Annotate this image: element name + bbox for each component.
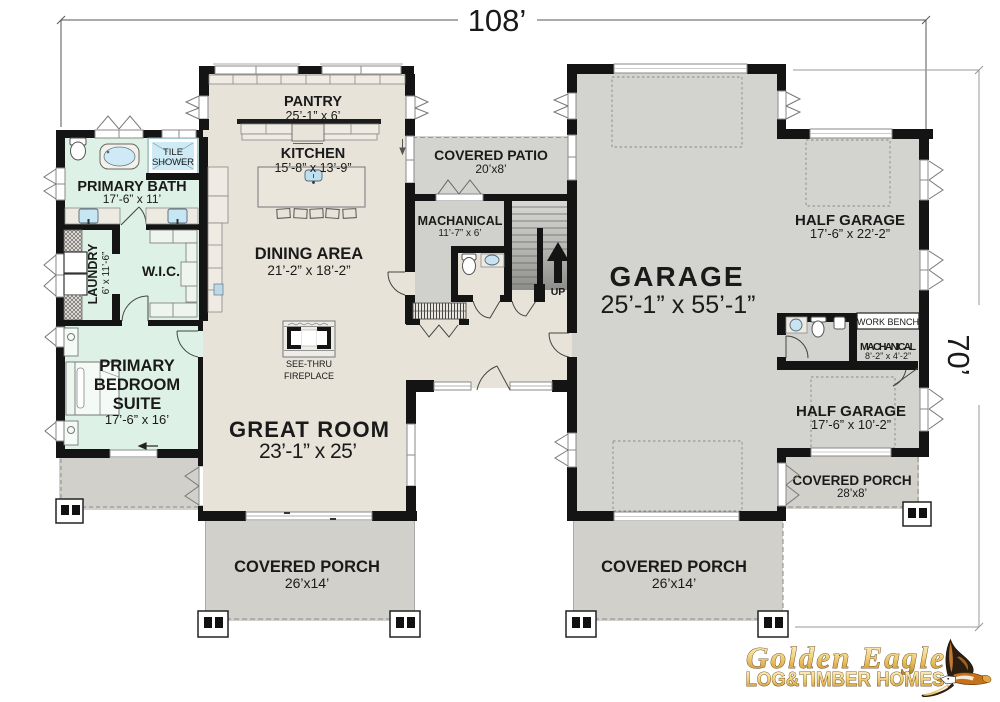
- svg-text:SUITE: SUITE: [113, 395, 162, 413]
- svg-text:UP: UP: [551, 286, 566, 298]
- svg-text:15’-8” x 13’-9”: 15’-8” x 13’-9”: [274, 161, 351, 175]
- svg-text:COVERED PORCH: COVERED PORCH: [234, 558, 380, 576]
- svg-text:26’x14’: 26’x14’: [285, 575, 329, 591]
- svg-text:COVERED PORCH: COVERED PORCH: [601, 558, 747, 576]
- svg-text:FIREPLACE: FIREPLACE: [284, 371, 334, 381]
- svg-text:GREAT ROOM: GREAT ROOM: [229, 417, 389, 442]
- svg-text:70’: 70’: [941, 334, 976, 375]
- svg-text:LAUNDRY: LAUNDRY: [86, 243, 100, 304]
- svg-text:28’x8’: 28’x8’: [837, 488, 867, 500]
- svg-text:23’-1” x 25’: 23’-1” x 25’: [259, 440, 357, 463]
- svg-text:17’-6” x 22’-2”: 17’-6” x 22’-2”: [810, 226, 890, 241]
- svg-text:17’-6” x 11’: 17’-6” x 11’: [103, 192, 161, 206]
- svg-text:21’-2” x 18’-2”: 21’-2” x 18’-2”: [267, 263, 350, 278]
- svg-text:COVERED PORCH: COVERED PORCH: [792, 473, 911, 488]
- svg-text:SEE-THRU: SEE-THRU: [286, 359, 332, 369]
- svg-text:20’x8’: 20’x8’: [475, 162, 506, 176]
- svg-text:DINING AREA: DINING AREA: [255, 245, 364, 263]
- svg-text:11’-7” x 6’: 11’-7” x 6’: [438, 228, 481, 239]
- svg-text:6’ x 11’-6”: 6’ x 11’-6”: [101, 252, 112, 295]
- svg-text:SHOWER: SHOWER: [152, 157, 194, 168]
- svg-text:17’-6” x 10’-2”: 17’-6” x 10’-2”: [811, 417, 891, 432]
- svg-text:W.I.C.: W.I.C.: [142, 263, 180, 279]
- svg-text:MACHANICAL: MACHANICAL: [418, 214, 503, 228]
- svg-text:108’: 108’: [468, 3, 527, 38]
- svg-text:8’-2” x 4’-2”: 8’-2” x 4’-2”: [865, 351, 911, 361]
- svg-text:25’-1” x 55’-1”: 25’-1” x 55’-1”: [601, 291, 756, 319]
- svg-text:KITCHEN: KITCHEN: [281, 146, 345, 162]
- svg-text:WORK BENCH: WORK BENCH: [857, 317, 919, 327]
- svg-text:26’x14’: 26’x14’: [652, 575, 696, 591]
- svg-text:PRIMARY: PRIMARY: [99, 357, 174, 375]
- svg-text:COVERED PATIO: COVERED PATIO: [434, 147, 548, 163]
- svg-text:PANTRY: PANTRY: [284, 94, 342, 110]
- svg-text:BEDROOM: BEDROOM: [94, 376, 180, 394]
- svg-text:17’-6” x 16’: 17’-6” x 16’: [105, 412, 169, 427]
- svg-text:LOG&TIMBER HOMES: LOG&TIMBER HOMES: [746, 668, 945, 691]
